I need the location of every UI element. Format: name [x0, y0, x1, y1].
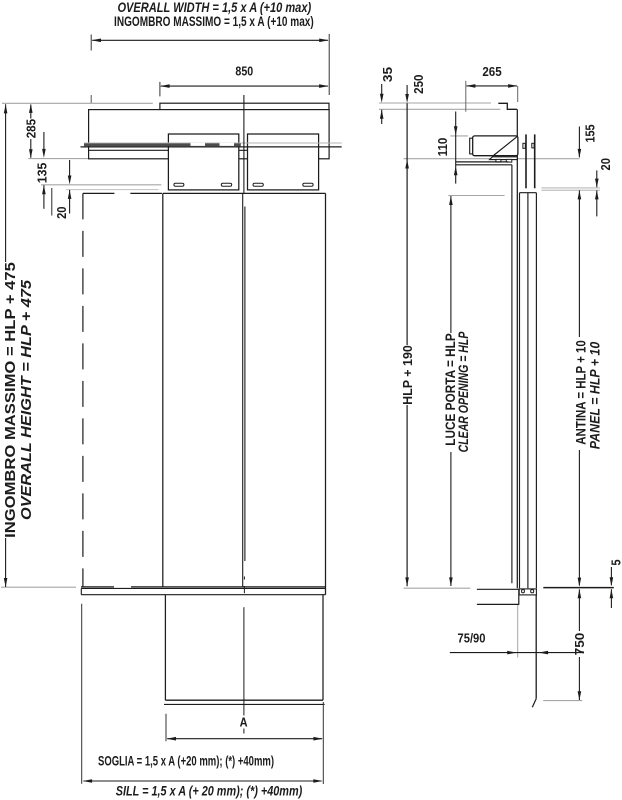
- svg-text:135: 135: [35, 163, 49, 184]
- svg-text:265: 265: [482, 65, 501, 80]
- svg-text:INGOMBRO MASSIMO = HLP + 475: INGOMBRO MASSIMO = HLP + 475: [3, 262, 19, 538]
- svg-text:285: 285: [24, 119, 39, 138]
- svg-text:SILL = 1,5 x A (+ 20 mm); (*): SILL = 1,5 x A (+ 20 mm); (*) +40mm): [116, 784, 302, 799]
- svg-text:OVERALL HEIGHT = HLP + 475: OVERALL HEIGHT = HLP + 475: [18, 280, 34, 520]
- svg-text:250: 250: [411, 74, 426, 93]
- svg-text:35: 35: [380, 66, 395, 82]
- svg-text:INGOMBRO MASSIMO = 1,5 x A (+1: INGOMBRO MASSIMO = 1,5 x A (+10 max): [114, 14, 314, 30]
- svg-text:CLEAR OPENING = HLP: CLEAR OPENING = HLP: [456, 331, 472, 453]
- svg-text:PANEL = HLP + 10: PANEL = HLP + 10: [587, 341, 603, 449]
- svg-text:HLP + 190: HLP + 190: [400, 345, 415, 405]
- svg-text:850: 850: [235, 63, 253, 78]
- svg-text:20: 20: [598, 158, 613, 171]
- svg-text:750: 750: [572, 633, 587, 656]
- svg-text:75/90: 75/90: [458, 631, 486, 646]
- svg-text:110: 110: [436, 138, 451, 157]
- svg-text:SOGLIA = 1,5 x A (+20 mm); (*): SOGLIA = 1,5 x A (+20 mm); (*) +40mm): [98, 754, 274, 769]
- svg-text:20: 20: [54, 206, 69, 219]
- svg-text:155: 155: [583, 124, 598, 142]
- svg-text:A: A: [240, 715, 248, 730]
- svg-text:5: 5: [609, 559, 622, 565]
